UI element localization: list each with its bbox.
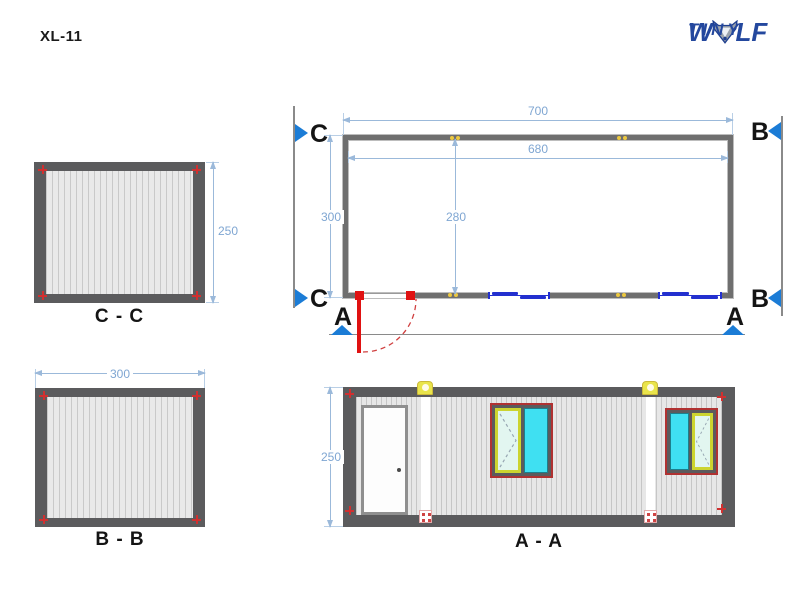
section-view-cc — [34, 162, 205, 303]
marker-arrow-icon — [768, 122, 781, 140]
casement-opening-icon — [695, 416, 710, 467]
marker-arrow-icon — [722, 325, 744, 335]
marker-arrow-icon — [295, 289, 308, 307]
marker-arrow-icon — [331, 325, 353, 335]
corner-fitting-icon — [38, 165, 47, 174]
window-sash — [662, 292, 690, 295]
panel-seam — [421, 397, 430, 515]
plan-window-symbol — [658, 292, 722, 299]
window-1 — [490, 403, 553, 478]
corner-fitting-icon — [192, 515, 201, 524]
dimension-value: 300 — [318, 210, 344, 224]
corner-fitting-icon — [38, 291, 47, 300]
dimension-outer-width: 700 — [343, 120, 733, 121]
door-swing-icon — [361, 297, 419, 357]
window-fixed-sash — [524, 408, 548, 473]
marker-arrow-icon — [295, 124, 308, 142]
section-marker-b-top: B — [751, 120, 769, 145]
dimension-aa-height: 250 — [330, 387, 331, 527]
window-sash — [691, 296, 719, 299]
dimension-value: 680 — [528, 143, 548, 155]
door-handle-icon — [397, 468, 401, 472]
bottom-frame-rail — [343, 515, 735, 527]
dimension-inner-width: 680 — [348, 158, 728, 159]
section-marker-b-bottom: B — [751, 287, 769, 312]
brand-logo-subtitle: TINY — [688, 20, 743, 40]
corner-fitting-icon — [192, 391, 201, 400]
dimension-value: 700 — [528, 105, 548, 117]
marker-arrow-icon — [768, 289, 781, 307]
window-end-cap — [720, 292, 722, 299]
casement-opening-icon — [498, 411, 518, 470]
window-end-cap — [548, 292, 550, 299]
dimension-value: 300 — [107, 367, 133, 381]
window-end-cap — [488, 292, 490, 299]
section-label-aa: A - A — [343, 531, 735, 553]
dimension-value: 250 — [218, 225, 238, 237]
plan-window-symbol — [488, 292, 550, 299]
dimension-value: 280 — [443, 210, 469, 224]
section-label-cc: C - C — [34, 306, 205, 328]
elevation-view-aa — [343, 387, 735, 527]
window-sash — [520, 296, 547, 299]
corner-fitting-icon — [345, 389, 354, 398]
floor-plan — [343, 135, 733, 298]
panel-joint-base-icon — [644, 510, 657, 523]
window-sash — [492, 292, 519, 295]
dimension-value: 250 — [318, 450, 344, 464]
dimension-inner-depth: 280 — [455, 139, 456, 294]
panel-joint-cap-icon — [642, 381, 658, 395]
panel-joint-cap-icon — [417, 381, 433, 395]
technical-drawing-canvas: XL-11 W LF TINY C C B B A A — [0, 0, 800, 600]
corner-fitting-icon — [717, 504, 726, 513]
window-2 — [665, 408, 718, 475]
joint-mark-icon — [617, 136, 627, 140]
panel-seam — [646, 397, 655, 515]
corner-fitting-icon — [39, 515, 48, 524]
section-label-bb: B - B — [35, 529, 205, 551]
corner-fitting-icon — [345, 506, 354, 515]
window-opening-sash — [692, 413, 713, 470]
corner-fitting-icon — [192, 291, 201, 300]
section-line-b — [781, 116, 783, 316]
corner-fitting-icon — [192, 165, 201, 174]
model-code-label: XL-11 — [40, 28, 83, 45]
window-end-cap — [658, 292, 660, 299]
window-opening-sash — [495, 408, 521, 473]
section-marker-c-bottom: C — [310, 287, 328, 312]
entry-door — [361, 405, 408, 515]
dimension-outer-depth: 300 — [330, 135, 331, 298]
joint-mark-icon — [616, 293, 626, 297]
dimension-cc-height — [213, 162, 214, 303]
panel-joint-base-icon — [419, 510, 432, 523]
section-view-bb — [35, 388, 205, 527]
corner-fitting-icon — [717, 392, 726, 401]
dimension-bb-width: 300 — [35, 373, 205, 374]
window-fixed-sash — [670, 413, 689, 470]
top-frame-rail — [343, 387, 735, 397]
corner-fitting-icon — [39, 391, 48, 400]
